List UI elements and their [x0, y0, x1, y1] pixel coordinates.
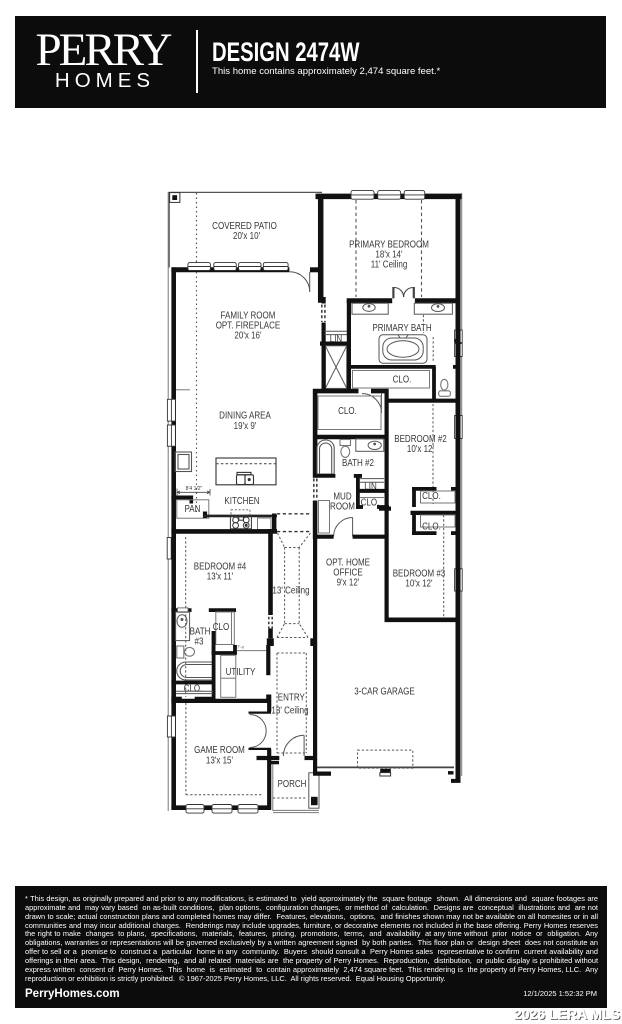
svg-text:GAME ROOM: GAME ROOM	[194, 744, 245, 755]
svg-text:DINING AREA: DINING AREA	[219, 410, 271, 421]
svg-text:13'x 11': 13'x 11'	[207, 571, 234, 582]
svg-text:20'x 10': 20'x 10'	[233, 230, 260, 241]
svg-text:CLO.: CLO.	[393, 374, 412, 385]
svg-text:#3: #3	[195, 636, 204, 647]
svg-text:CLO.: CLO.	[422, 521, 441, 532]
svg-text:CLO.: CLO.	[422, 490, 441, 501]
svg-text:CLO: CLO	[213, 621, 229, 632]
svg-text:8'4 1/2": 8'4 1/2"	[186, 486, 203, 492]
svg-text:PAN: PAN	[185, 503, 201, 514]
svg-text:3-CAR GARAGE: 3-CAR GARAGE	[354, 686, 415, 697]
svg-text:2026 LERA MLS: 2026 LERA MLS	[514, 1006, 620, 1022]
svg-text:ENTRY: ENTRY	[278, 692, 305, 703]
svg-text:UTILITY: UTILITY	[226, 666, 256, 677]
svg-text:10'x 12': 10'x 12'	[405, 578, 432, 589]
svg-text:13' Ceiling: 13' Ceiling	[272, 585, 309, 596]
svg-text:KITCHEN: KITCHEN	[224, 495, 259, 506]
svg-text:CLO.: CLO.	[184, 683, 203, 694]
svg-text:19'x 9': 19'x 9'	[234, 420, 257, 431]
svg-text:10'x 12': 10'x 12'	[407, 443, 434, 454]
svg-text:PORCH: PORCH	[278, 778, 307, 789]
svg-text:9'x 12': 9'x 12'	[337, 577, 360, 588]
svg-text:BATH #2: BATH #2	[342, 457, 374, 468]
svg-text:7'-x: 7'-x	[237, 645, 245, 650]
svg-text:ROOM: ROOM	[330, 501, 355, 512]
svg-text:CLO.: CLO.	[338, 405, 357, 416]
svg-text:20'x 16': 20'x 16'	[234, 330, 261, 341]
svg-text:CLO.: CLO.	[361, 497, 380, 508]
svg-text:PRIMARY BATH: PRIMARY BATH	[372, 322, 431, 333]
svg-text:13'x 15': 13'x 15'	[206, 755, 233, 766]
svg-text:11' Ceiling: 11' Ceiling	[371, 259, 408, 270]
